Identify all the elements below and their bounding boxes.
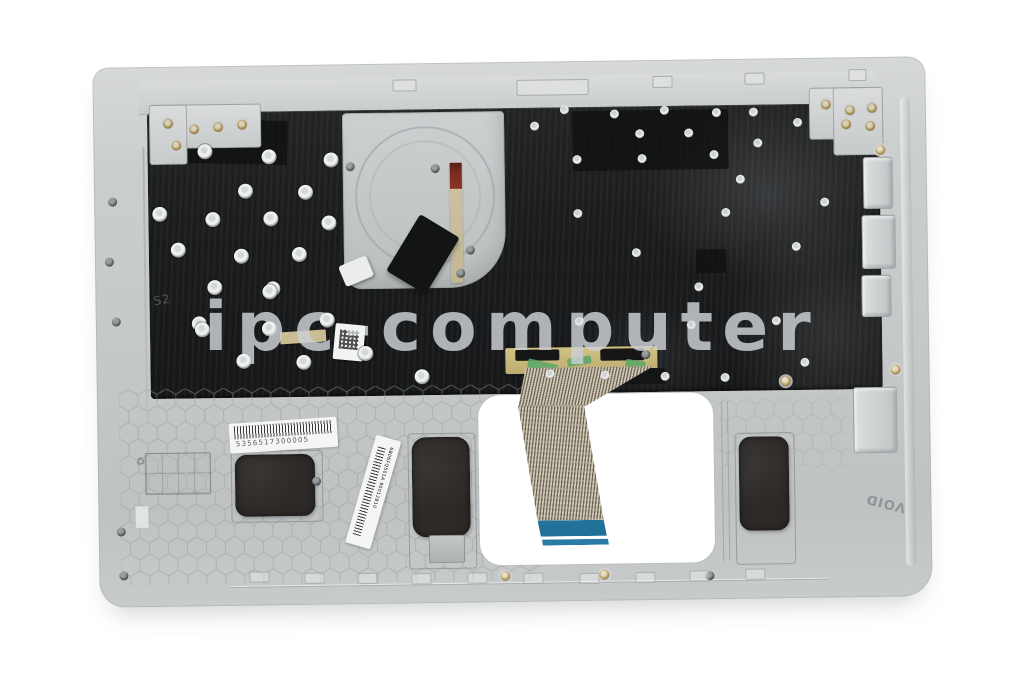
rivet-small [709, 150, 718, 159]
rivet [415, 369, 430, 384]
screw-boss [108, 198, 117, 207]
rivet [205, 212, 220, 227]
speaker-housing [429, 535, 465, 563]
rivet-small [736, 175, 745, 184]
rivet-small [660, 106, 669, 115]
rivet-small [573, 155, 582, 164]
screw-boss [112, 317, 121, 326]
rim-tab [848, 69, 866, 81]
foam-pad-right [738, 436, 789, 531]
screw-boss [346, 162, 355, 171]
rivet [171, 243, 186, 258]
rivet [292, 247, 307, 262]
rivet-small [560, 105, 569, 114]
bracket-screw-right [845, 105, 855, 115]
rivet-small [712, 108, 721, 117]
rim-tab [652, 76, 672, 88]
rivet [236, 354, 251, 369]
rivet [195, 322, 210, 337]
hinge-bracket-left-arm [149, 105, 188, 166]
bracket-screw-left [163, 119, 173, 129]
bracket-screw-right [865, 121, 875, 131]
gold-screw [875, 145, 885, 155]
rivet [263, 211, 278, 226]
rivet-small [792, 242, 801, 251]
foam-pad-left [235, 454, 316, 517]
connector-block [600, 348, 644, 361]
gold-screw [599, 570, 609, 580]
rim-slot [467, 572, 487, 583]
rivet-small [684, 128, 693, 137]
backlight-flex-cable [450, 163, 464, 283]
rivet-small [753, 138, 762, 147]
gold-screw [500, 571, 510, 581]
rim-slot [304, 573, 324, 584]
side-port-cutout [861, 275, 892, 317]
foam-pad-middle [411, 437, 470, 538]
bracket-screw-right [841, 119, 851, 129]
rim-tab [392, 79, 416, 91]
screw-boss [312, 477, 321, 486]
side-port-cutout [863, 157, 894, 209]
bracket-screw-left [237, 120, 247, 130]
bracket-screw-left [189, 124, 199, 134]
rivet-small [601, 371, 610, 380]
rivet [262, 321, 277, 336]
rivet-small [610, 109, 619, 118]
gold-screw [890, 365, 900, 375]
rim-slot [635, 572, 655, 583]
screw-boss [456, 269, 465, 278]
rivet-small [546, 369, 555, 378]
rivet [321, 215, 336, 230]
rim-slot [411, 573, 431, 584]
screw-boss [117, 527, 126, 536]
product-photo: S2 [0, 0, 1024, 680]
rivet-small [687, 320, 696, 329]
rim-slot [357, 573, 377, 584]
rivet-small [530, 122, 539, 131]
rivet-small [721, 373, 730, 382]
side-port-cutout [861, 215, 896, 269]
molded-info-mark [134, 505, 149, 529]
rim-slot [523, 573, 543, 584]
screw-boss [119, 571, 128, 580]
rivet-small [820, 198, 829, 207]
side-latch-cutout [853, 387, 898, 454]
rim-tab [516, 79, 588, 96]
foam-patch [696, 249, 726, 273]
keyboard-ribbon-cable [512, 405, 614, 546]
bracket-screw-left [213, 122, 223, 132]
flex-cable-red-tip [450, 163, 462, 189]
screw-boss [466, 246, 475, 255]
rivet [323, 152, 338, 167]
rim-slot [745, 568, 765, 579]
rivet [358, 346, 373, 361]
connector-block [515, 349, 559, 361]
rivet-small [573, 209, 582, 218]
rivet [234, 249, 249, 264]
rivet-small [793, 118, 802, 127]
rivet-small [721, 208, 730, 217]
rivet-small [661, 372, 670, 381]
bracket-screw-left [171, 141, 181, 151]
molded-grid-recess [145, 452, 212, 495]
rim-tab [744, 72, 764, 84]
rivet-small [638, 154, 647, 163]
foam-patch [572, 109, 729, 171]
screw-boss [431, 164, 440, 173]
bracket-screw-right [867, 103, 877, 113]
rivet-small [575, 317, 584, 326]
screw-boss [641, 350, 650, 359]
rivet-small [800, 358, 809, 367]
rivet [298, 185, 313, 200]
rim-slot [579, 573, 599, 584]
rivet-small [694, 282, 703, 291]
rivet-small [772, 316, 781, 325]
rim-slot [249, 571, 269, 582]
rivet-small [632, 248, 641, 257]
rim-slot [689, 570, 709, 581]
bracket-screw-right [821, 100, 831, 110]
tape-green-mark [567, 355, 592, 367]
rivet-small [635, 129, 644, 138]
palmrest-assembly: S2 [92, 56, 932, 608]
hinge-bracket-right-arm [833, 87, 884, 156]
screw-boss [105, 258, 114, 267]
qr-code [339, 329, 360, 350]
rivet-small [749, 108, 758, 117]
gold-screw [781, 376, 791, 386]
